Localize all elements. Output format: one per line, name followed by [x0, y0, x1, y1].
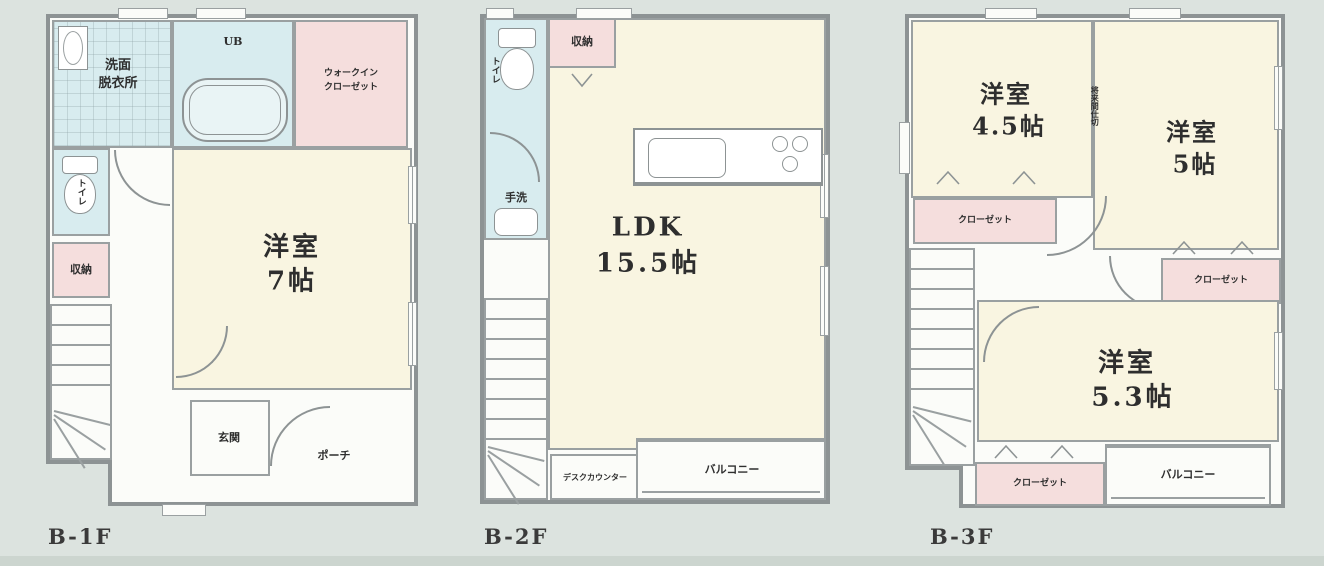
stove-burner-icon — [782, 156, 798, 172]
bedroom45-label-line1: 洋室 — [980, 81, 1032, 106]
toilet-tank-icon — [62, 156, 98, 174]
storage-label: 収納 — [70, 264, 92, 276]
floor-plan-b2f: LDK 15.5帖 トイレ 手洗 収納 デスクカウンター — [480, 14, 830, 518]
handwash-label: 手洗 — [505, 192, 527, 204]
window-marker — [408, 166, 417, 224]
bedroom7-label-line2: 7帖 — [267, 268, 317, 295]
vent-tab — [985, 8, 1037, 19]
stair-winder-line — [913, 406, 972, 422]
toilet-bowl-icon — [500, 48, 534, 90]
ldk-label-line1: LDK — [612, 214, 684, 241]
floor-label-b2f: B-2F — [484, 524, 548, 549]
stairs — [484, 298, 548, 500]
bedroom53-label-line1: 洋室 — [1098, 350, 1156, 377]
toilet-tank-icon — [498, 28, 536, 48]
hanger-pipe-icon — [1049, 444, 1075, 460]
ldk-label-line2: 15.5帖 — [596, 250, 700, 277]
hanger-pipe-icon — [1171, 240, 1197, 256]
stair-treads — [911, 250, 973, 400]
hanger-pipe-icon — [935, 170, 961, 186]
toilet-label: トイレ — [489, 57, 498, 84]
closet-a-label: クローゼット — [958, 216, 1012, 225]
bath-label: UB — [224, 36, 243, 48]
balcony-railing — [642, 491, 820, 493]
desk-counter-label: デスクカウンター — [563, 473, 627, 481]
partition-note: 将来間仕切 — [1091, 86, 1099, 126]
bottom-edge-strip — [0, 556, 1324, 566]
plan-notch — [905, 466, 963, 508]
wic-label-line2: クローゼット — [324, 83, 378, 92]
bedroom7-label-line1: 洋室 — [263, 234, 321, 261]
toilet-label: トイレ — [75, 179, 84, 206]
window-marker — [1274, 332, 1283, 390]
window-tab — [899, 122, 910, 174]
stair-winder-line — [488, 446, 545, 462]
bathtub-inner-icon — [189, 85, 281, 135]
floor-label-b3f: B-3F — [930, 524, 994, 549]
bedroom45-label-line2: 4.5帖 — [972, 113, 1046, 138]
stair-treads — [486, 300, 546, 440]
bedroom5-label-line1: 洋室 — [1166, 119, 1218, 144]
storage-label: 収納 — [571, 36, 593, 48]
balcony-label: バルコニー — [705, 464, 760, 476]
washer-drum-icon — [63, 31, 83, 65]
porch-step — [162, 504, 206, 516]
hanger-pipe-icon — [570, 72, 594, 88]
stove-burner-icon — [772, 136, 788, 152]
window-marker — [820, 266, 829, 336]
porch-label: ポーチ — [318, 450, 351, 462]
stair-treads — [52, 306, 110, 404]
washing-machine-icon — [58, 26, 88, 70]
hanger-pipe-icon — [1229, 240, 1255, 256]
hanger-pipe-icon — [993, 444, 1019, 460]
closet-b-label: クローゼット — [1194, 276, 1248, 285]
hand-sink-icon — [494, 208, 538, 236]
window-marker — [1274, 66, 1283, 130]
stair-winder-line — [54, 410, 111, 426]
stairs — [50, 304, 112, 460]
hanger-pipe-icon — [1011, 170, 1037, 186]
bedroom5-label-line2: 5帖 — [1173, 151, 1218, 176]
floor-plan-b1f: 洗面 脱衣所 UB ウォークイン クローゼット トイレ 収納 洋室 7帖 — [46, 14, 418, 518]
wic-label-line1: ウォークイン — [324, 69, 378, 78]
kitchen-sink-icon — [648, 138, 726, 178]
vent-tab — [1129, 8, 1181, 19]
vent-tab — [118, 8, 168, 19]
vent-tab — [196, 8, 246, 19]
bathtub-icon — [182, 78, 288, 142]
floor-plan-b3f: 洋室 4.5帖 洋室 5帖 将来間仕切 クローゼット クローゼット — [905, 14, 1285, 518]
window-marker — [408, 302, 417, 366]
floor-label-b1f: B-1F — [48, 524, 112, 549]
closet-c-label: クローゼット — [1013, 479, 1067, 488]
balcony-label: バルコニー — [1161, 469, 1216, 481]
floorplan-sheet: 洗面 脱衣所 UB ウォークイン クローゼット トイレ 収納 洋室 7帖 — [0, 0, 1324, 566]
bedroom53-label-line2: 5.3帖 — [1091, 384, 1174, 411]
washroom-label-line1: 洗面 — [105, 59, 131, 73]
stairs — [909, 248, 975, 466]
stove-burner-icon — [792, 136, 808, 152]
balcony-railing — [1111, 497, 1265, 499]
washroom-label-line2: 脱衣所 — [98, 77, 137, 91]
plan-notch — [46, 460, 112, 506]
entrance-label: 玄関 — [218, 432, 240, 444]
